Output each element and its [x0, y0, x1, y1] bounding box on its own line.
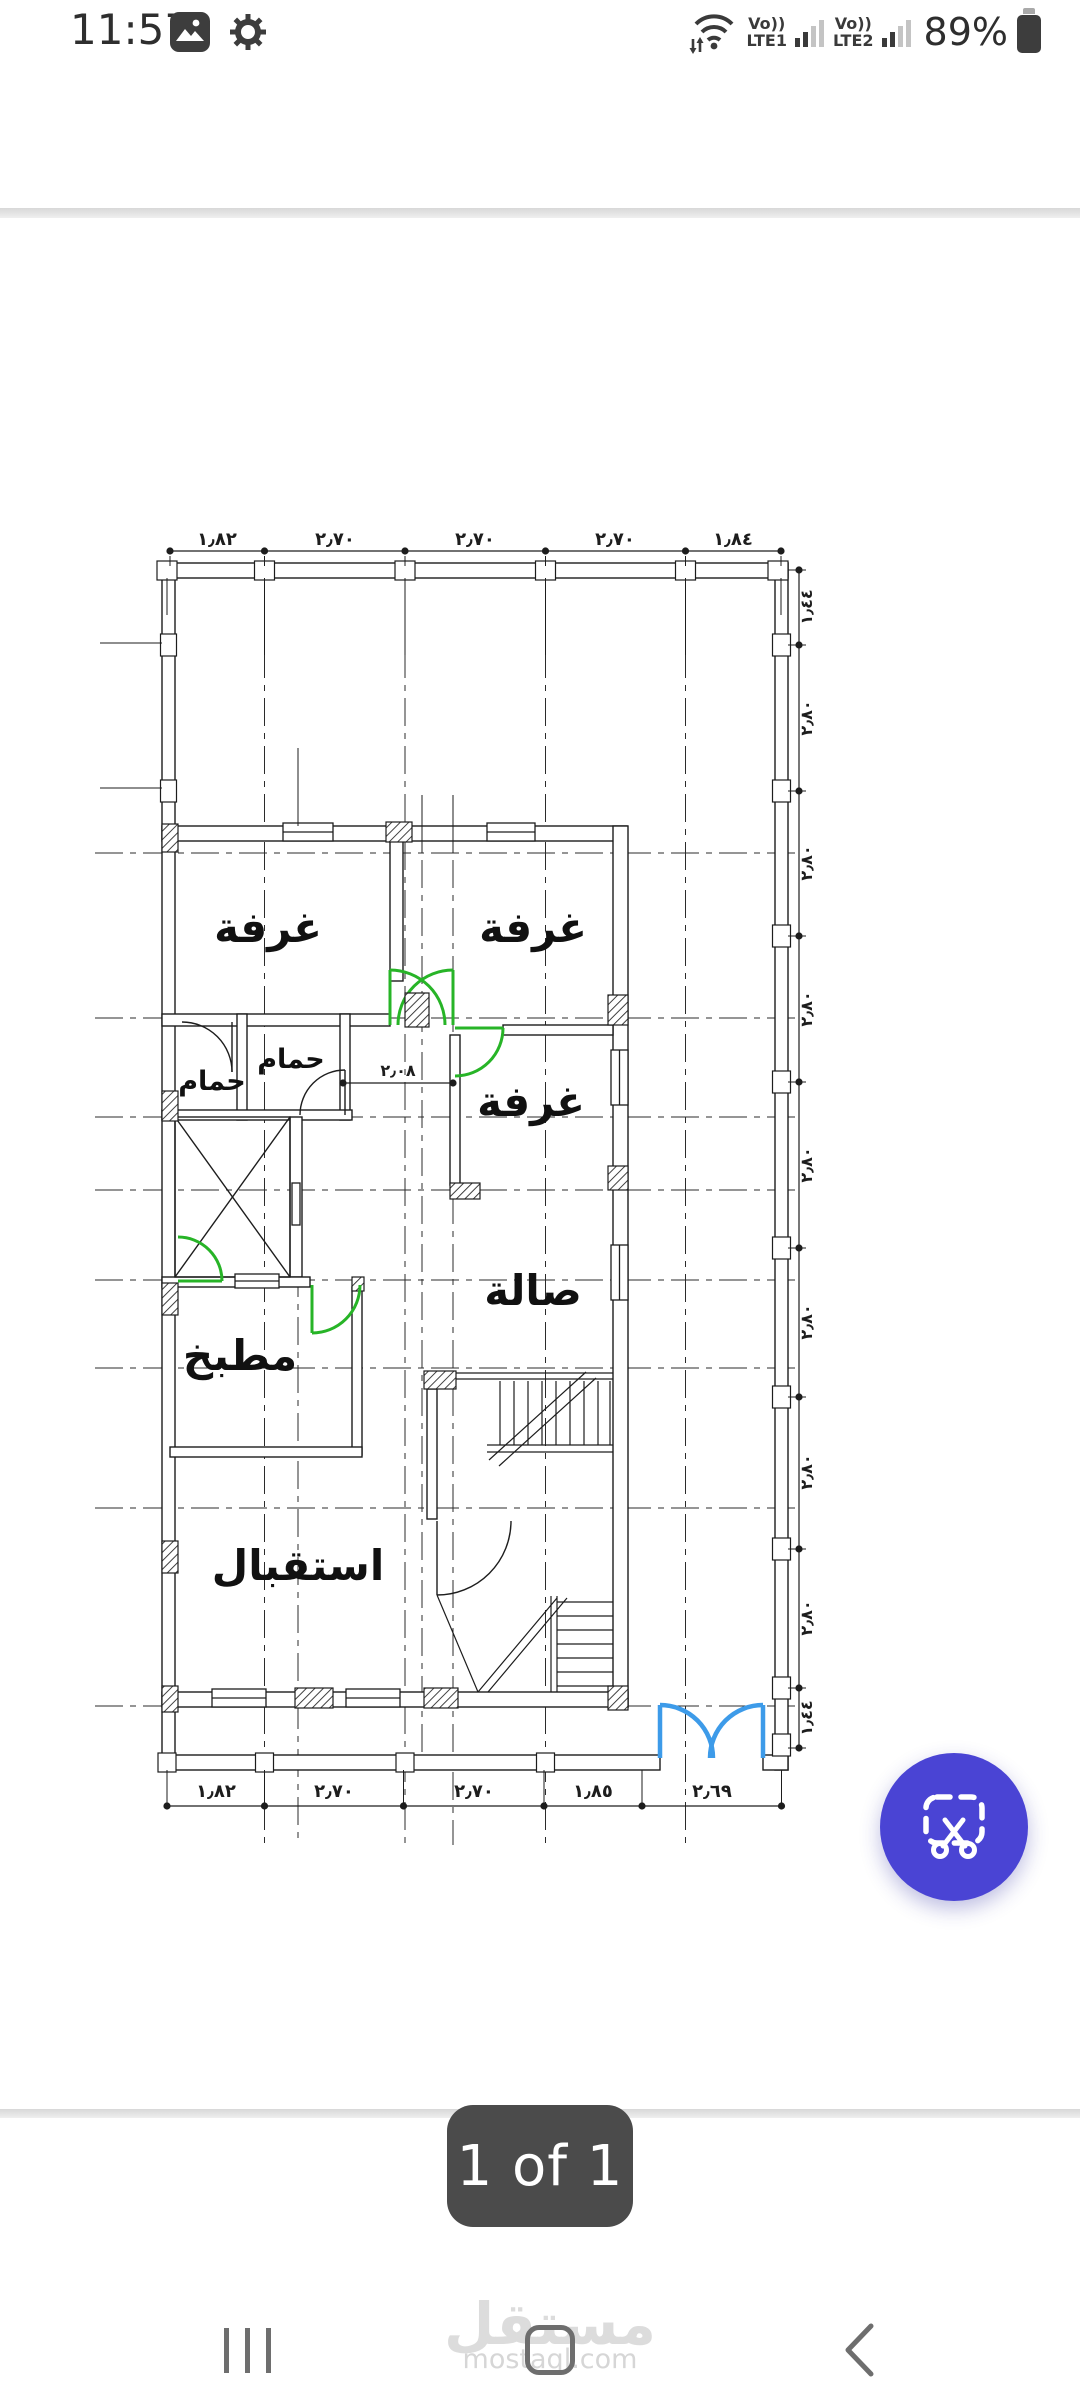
dim-bottom-2: ٢٫٧٠ [314, 1781, 354, 1802]
page-indicator-text: 1 of 1 [457, 2134, 624, 2199]
dim-right-3: ٢٫٨٠ [797, 845, 816, 880]
gear-icon [226, 10, 270, 54]
dim-top-3: ٢٫٧٠ [455, 529, 495, 550]
dim-interior: ٢٫٠٨ [380, 1061, 416, 1080]
home-icon [525, 2325, 575, 2375]
page-indicator-badge: 1 of 1 [447, 2105, 633, 2227]
room-label-kitchen: مطبخ [183, 1331, 297, 1381]
screenshot-crop-fab[interactable] [880, 1753, 1028, 1901]
columns-plain [157, 561, 791, 1772]
grid-axes [95, 650, 800, 1845]
battery-percent: 89% [924, 10, 1008, 54]
light-well [175, 1117, 290, 1277]
sim1-volte: Vo)) [748, 15, 785, 32]
recents-button[interactable] [187, 2300, 307, 2400]
signal-bars-icon [795, 16, 825, 48]
room-label-bedroom-tl: غرفة [214, 903, 322, 953]
sim1-labels: Vo)) LTE1 [746, 15, 787, 49]
recents-icon [245, 2328, 250, 2373]
phone-screen: 11:57 [0, 0, 1080, 2408]
sim2-labels: Vo)) LTE2 [833, 15, 874, 49]
sim2-volte: Vo)) [835, 15, 872, 32]
windows [212, 823, 628, 1707]
back-button[interactable] [800, 2300, 920, 2400]
room-label-bedroom-tr: غرفة [479, 903, 587, 953]
battery-icon [1016, 8, 1042, 56]
stairs [437, 1372, 613, 1692]
wifi-icon [686, 9, 738, 55]
dim-right-1: ١٫٤٤ [797, 589, 816, 624]
extension-lines [100, 556, 806, 1806]
viewer-top-edge [0, 208, 1080, 218]
dim-top-2: ٢٫٧٠ [315, 529, 355, 550]
dim-top-4: ٢٫٧٠ [595, 529, 635, 550]
room-label-bath-small: حمام [178, 1066, 246, 1097]
sim2-network: LTE2 [833, 32, 874, 49]
door-column [405, 993, 429, 1027]
recents-icon [266, 2328, 271, 2373]
walls [160, 563, 788, 1770]
dim-bottom-5: ٢٫٦٩ [692, 1781, 732, 1802]
dim-right-9: ١٫٤٤ [797, 1700, 816, 1735]
room-labels: غرفة غرفة غرفة حمام حمام صالة مطبخ استقب… [178, 903, 587, 1590]
sim1-network: LTE1 [746, 32, 787, 49]
entrance-door [660, 1705, 763, 1758]
dim-right-4: ٢٫٨٠ [797, 991, 816, 1026]
floor-plan-drawing: ١٫٨٢ ٢٫٧٠ ٢٫٧٠ ٢٫٧٠ ١٫٨٤ ١٫٨٢ ٢٫٧٠ ٢٫٧٠ … [0, 0, 1080, 2408]
room-label-hall: صالة [484, 1266, 582, 1315]
columns-hatched [162, 822, 628, 1712]
status-cluster: Vo)) LTE1 Vo)) LTE2 89% [686, 0, 1042, 64]
dim-right-5: ٢٫٨٠ [797, 1147, 816, 1182]
navigation-bar [0, 2300, 1080, 2408]
green-doors [178, 970, 503, 1333]
room-label-reception: استقبال [212, 1541, 384, 1590]
dim-right-6: ٢٫٨٠ [797, 1304, 816, 1339]
dimension-labels: ١٫٨٢ ٢٫٧٠ ٢٫٧٠ ٢٫٧٠ ١٫٨٤ ١٫٨٢ ٢٫٧٠ ٢٫٧٠ … [196, 529, 816, 1802]
dim-right-8: ٢٫٨٠ [797, 1600, 816, 1635]
dim-bottom-1: ١٫٨٢ [196, 1781, 236, 1802]
dim-right-2: ٢٫٨٠ [797, 700, 816, 735]
home-button[interactable] [490, 2300, 610, 2400]
crop-scissors-icon [913, 1784, 995, 1870]
gallery-icon [168, 10, 212, 54]
dimension-lines [164, 548, 802, 1809]
back-icon [839, 2321, 881, 2379]
dim-bottom-4: ١٫٨٥ [573, 1781, 613, 1802]
dim-top-1: ١٫٨٢ [197, 529, 237, 550]
dim-right-7: ٢٫٨٠ [797, 1454, 816, 1489]
status-bar: 11:57 [0, 0, 1080, 64]
dim-bottom-3: ٢٫٧٠ [454, 1781, 494, 1802]
recents-icon [224, 2328, 229, 2373]
room-label-bath-main: حمام [257, 1044, 325, 1075]
room-label-bedroom-mid: غرفة [477, 1077, 585, 1127]
signal-bars-icon [882, 16, 912, 48]
dim-top-5: ١٫٨٤ [713, 529, 753, 550]
interior-doors [182, 1022, 511, 1595]
